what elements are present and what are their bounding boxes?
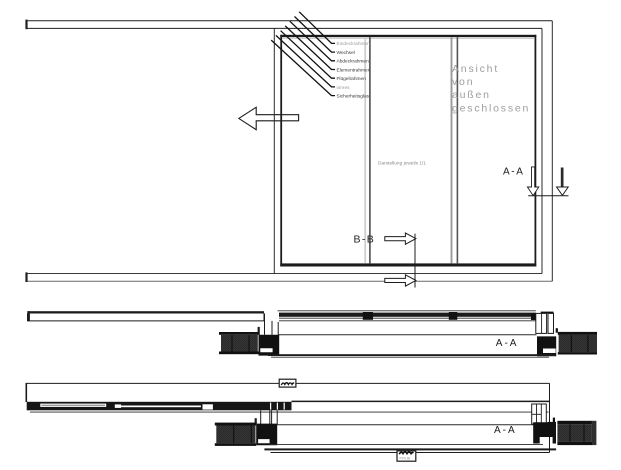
svg-text:Abdeckrahmen: Abdeckrahmen xyxy=(337,59,370,65)
svg-text:Flügelrahmen: Flügelrahmen xyxy=(337,76,367,82)
svg-text:innres: innres xyxy=(337,85,351,91)
svg-text:Sicherheitsglas: Sicherheitsglas xyxy=(337,94,370,100)
svg-text:Elementrahmen: Elementrahmen xyxy=(337,67,371,73)
svg-text:geschlossen: geschlossen xyxy=(452,102,530,114)
svg-text:Eindeckrahmen: Eindeckrahmen xyxy=(337,41,371,47)
svg-text:Wechsel: Wechsel xyxy=(337,50,355,56)
svg-text:Ansicht: Ansicht xyxy=(452,63,499,75)
svg-text:A-A: A-A xyxy=(503,166,524,177)
svg-text:P.Ps.Br: P.Ps.Br xyxy=(400,457,412,461)
svg-text:B-B: B-B xyxy=(354,233,376,245)
svg-text:Darstellung jeweils 1/1: Darstellung jeweils 1/1 xyxy=(378,160,426,166)
svg-text:außen: außen xyxy=(452,89,491,101)
svg-text:von: von xyxy=(452,76,474,88)
svg-text:A-A: A-A xyxy=(496,338,519,349)
svg-text:A-A: A-A xyxy=(494,425,517,436)
